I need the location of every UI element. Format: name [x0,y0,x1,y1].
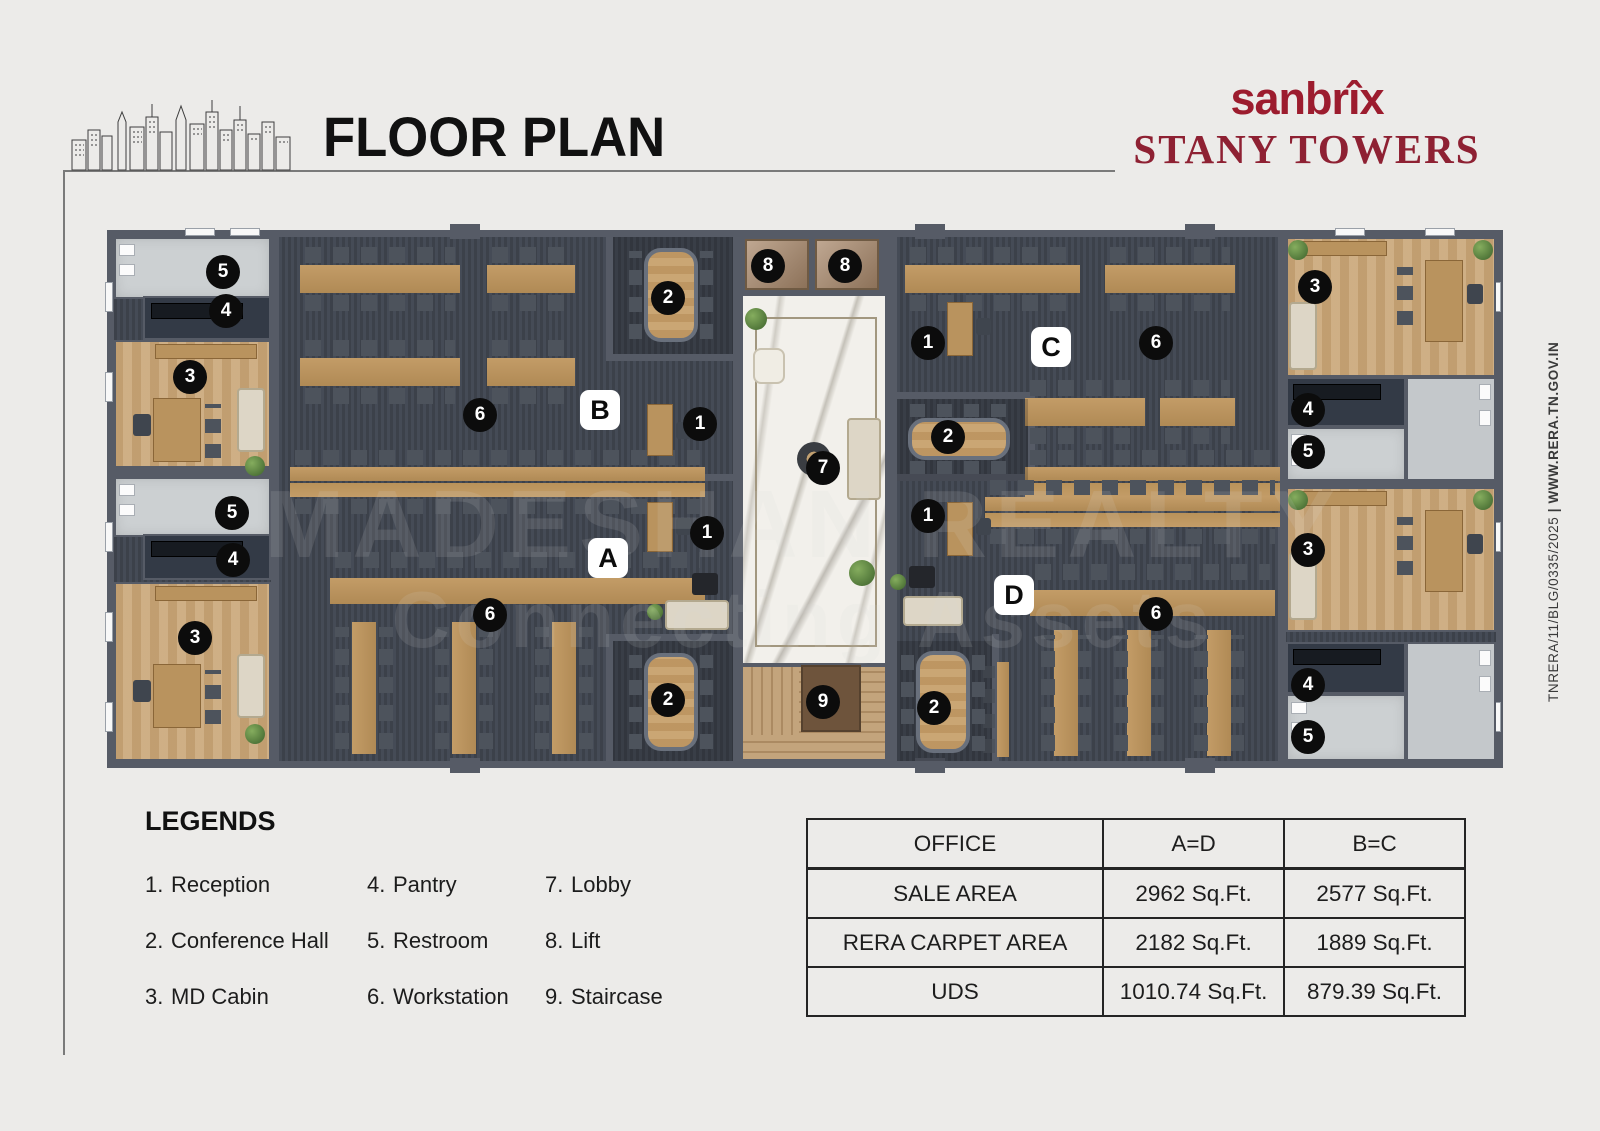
md-chair [1467,534,1483,554]
brand-logo-bold: brîx [1305,73,1384,124]
marker-reception-d: 1 [911,499,945,533]
marker-pantry-b: 4 [209,294,243,328]
reception-desk-a [647,502,673,552]
workstation-cluster [290,450,705,514]
legend-restroom: 5.Restroom [367,928,545,954]
toilet-fixture [1479,410,1491,426]
marker-reception-a: 1 [690,516,724,550]
marker-reception-c: 1 [911,326,945,360]
brand-logo-light: san [1230,73,1305,124]
marker-pantry-d: 4 [1291,668,1325,702]
plant [890,574,906,590]
brand-logo: sanbrîx [1108,76,1506,121]
plant [745,308,767,330]
window [105,282,113,312]
legend-workstation: 6.Workstation [367,984,545,1010]
stair-flight [743,667,799,735]
cabin-sofa [237,654,265,718]
reception-chair [976,518,991,535]
area-table: OFFICE A=D B=C SALE AREA 2962 Sq.Ft. 257… [806,818,1466,1017]
reception-desk-d [947,502,973,556]
workstation-cluster [435,622,493,754]
side-table [909,566,935,588]
workstation-cluster [1194,630,1244,756]
rera-separator: | [1546,504,1561,517]
table-row-sale-area: SALE AREA 2962 Sq.Ft. 2577 Sq.Ft. [807,869,1465,919]
marker-pantry-c: 4 [1291,393,1325,427]
reception-desk-b [647,404,673,456]
cabin-sofa [237,388,265,452]
reception-chair [976,318,991,335]
toilet-fixture [1479,676,1491,692]
guest-chairs [1397,517,1413,575]
brand-block: sanbrîx STANY TOWERS [1108,76,1506,173]
md-chair [1467,284,1483,304]
marker-mdcabin-b: 3 [173,360,207,394]
marker-pantry-a: 4 [216,543,250,577]
plant [1288,490,1308,510]
plant [245,724,265,744]
guest-chairs [205,404,221,458]
guest-chairs [1397,267,1413,325]
md-chair [133,680,151,702]
lounge-sofa [665,600,729,630]
legend-lift: 8.Lift [545,928,705,954]
marker-restroom-c: 5 [1291,435,1325,469]
legend-reception: 1.Reception [145,872,367,898]
window [1335,228,1365,236]
plant [849,560,875,586]
legends-heading: LEGENDS [145,806,276,837]
reception-desk-c [947,302,973,356]
wall-core-right [887,230,897,768]
window [105,372,113,402]
workstation-cluster [535,622,593,754]
workstation-cluster [487,247,575,311]
marker-workstation-a: 6 [473,598,507,632]
wall-conf-b-left [606,230,613,361]
plant [1288,240,1308,260]
legend-staircase: 9.Staircase [545,984,705,1010]
brochure-page: FLOOR PLAN sanbrîx STANY TOWERS TNRERA/1… [0,0,1600,1131]
lobby-armchair [753,348,785,384]
toilet-fixture [119,484,135,496]
credenza [155,586,257,601]
page-title: FLOOR PLAN [323,104,665,169]
workstation-cluster [1160,380,1235,444]
rera-side-note: TNRERA/11/BLG/0335/2025 | WWW.RERA.TN.GO… [1546,310,1561,702]
pillar [450,224,480,239]
workstation-cluster [1025,380,1145,444]
md-chair [133,414,151,436]
md-desk [1425,510,1463,592]
md-cabin-c [1286,237,1496,377]
rera-website: WWW.RERA.TN.GOV.IN [1546,342,1561,504]
legend-lobby: 7.Lobby [545,872,705,898]
toilet-fixture [119,264,135,276]
marker-conference-a: 2 [651,683,685,717]
side-table [692,573,718,595]
marker-conference-d: 2 [917,691,951,725]
workstation-cluster [300,340,460,404]
plant [1473,240,1493,260]
marker-workstation-b: 6 [463,398,497,432]
pillar [915,224,945,239]
workstation-cluster [1105,247,1235,311]
workstation-cluster [985,480,1280,544]
credenza [155,344,257,359]
lounge-sofa [903,596,963,626]
toilet-fixture [1479,384,1491,400]
window [230,228,260,236]
marker-restroom-d: 5 [1291,720,1325,754]
workstation-cluster [335,622,393,754]
window [185,228,215,236]
plant [245,456,265,476]
legends-list: 1.Reception 2.Conference Hall 3.MD Cabin… [145,872,705,1010]
restroom-b [114,237,271,299]
workstation-cluster [905,247,1080,311]
marker-conference-c: 2 [931,420,965,454]
workstation-cluster [487,340,575,404]
md-desk [153,664,201,728]
md-desk [153,398,201,462]
marker-workstation-d: 6 [1139,597,1173,631]
toilet-fixture [1479,650,1491,666]
window [105,522,113,552]
col-b-equals-c: B=C [1284,819,1465,869]
table-row-rera-carpet-area: RERA CARPET AREA 2182 Sq.Ft. 1889 Sq.Ft. [807,918,1465,967]
marker-mdcabin-c: 3 [1298,270,1332,304]
toilet-fixture [1291,702,1307,714]
marker-conference-b: 2 [651,281,685,315]
marker-restroom-b: 5 [206,255,240,289]
wall-left-rooms [271,230,279,768]
workstation-cluster [330,552,705,604]
plant [1473,490,1493,510]
label-office-d: D [994,575,1034,615]
brand-project-name: STANY TOWERS [1108,125,1506,173]
reception-chair [676,518,691,535]
wall-conf-a-left [606,634,613,768]
pillar [450,758,480,773]
marker-reception-b: 1 [683,407,717,441]
wall-conf-a-top [606,634,740,641]
table-header-row: OFFICE A=D B=C [807,819,1465,869]
pillar [1185,224,1215,239]
marker-lobby: 7 [806,451,840,485]
pantry-counter [1293,649,1381,665]
table-row-uds: UDS 1010.74 Sq.Ft. 879.39 Sq.Ft. [807,967,1465,1016]
label-office-c: C [1031,327,1071,367]
marker-restroom-a: 5 [215,496,249,530]
col-office: OFFICE [807,819,1103,869]
left-rule-line [63,171,65,1055]
marker-workstation-c: 6 [1139,326,1173,360]
workstation-cluster [1041,630,1091,756]
md-desk [1425,260,1463,342]
legend-pantry: 4.Pantry [367,872,545,898]
floor-plan: MADESHAN REALTY Connecting Assets 5 4 3 … [95,222,1512,778]
toilet-fixture [119,504,135,516]
workstation-cluster [1114,630,1164,756]
cabin-sofa [1289,302,1317,370]
window [1425,228,1455,236]
rera-number: TNRERA/11/BLG/0335/2025 [1546,517,1561,702]
pillar [1185,758,1215,773]
window [105,612,113,642]
marker-mdcabin-a: 3 [178,621,212,655]
city-skyline-icon [70,92,298,171]
workstation-cluster [300,247,460,311]
marker-staircase: 9 [806,685,840,719]
plant [647,604,663,620]
col-a-equals-d: A=D [1103,819,1284,869]
toilet-fixture [119,244,135,256]
legend-md-cabin: 3.MD Cabin [145,984,367,1010]
lobby-sofa [847,418,881,500]
wall-conf-b-bottom [606,354,740,361]
guest-chairs [205,670,221,724]
wall-conf-c-top [890,392,1035,399]
legend-conference-hall: 2.Conference Hall [145,928,367,954]
window [105,702,113,732]
marker-mdcabin-d: 3 [1291,533,1325,567]
marker-lift-1: 8 [751,249,785,283]
label-office-b: B [580,390,620,430]
label-office-a: A [588,538,628,578]
marker-lift-2: 8 [828,249,862,283]
